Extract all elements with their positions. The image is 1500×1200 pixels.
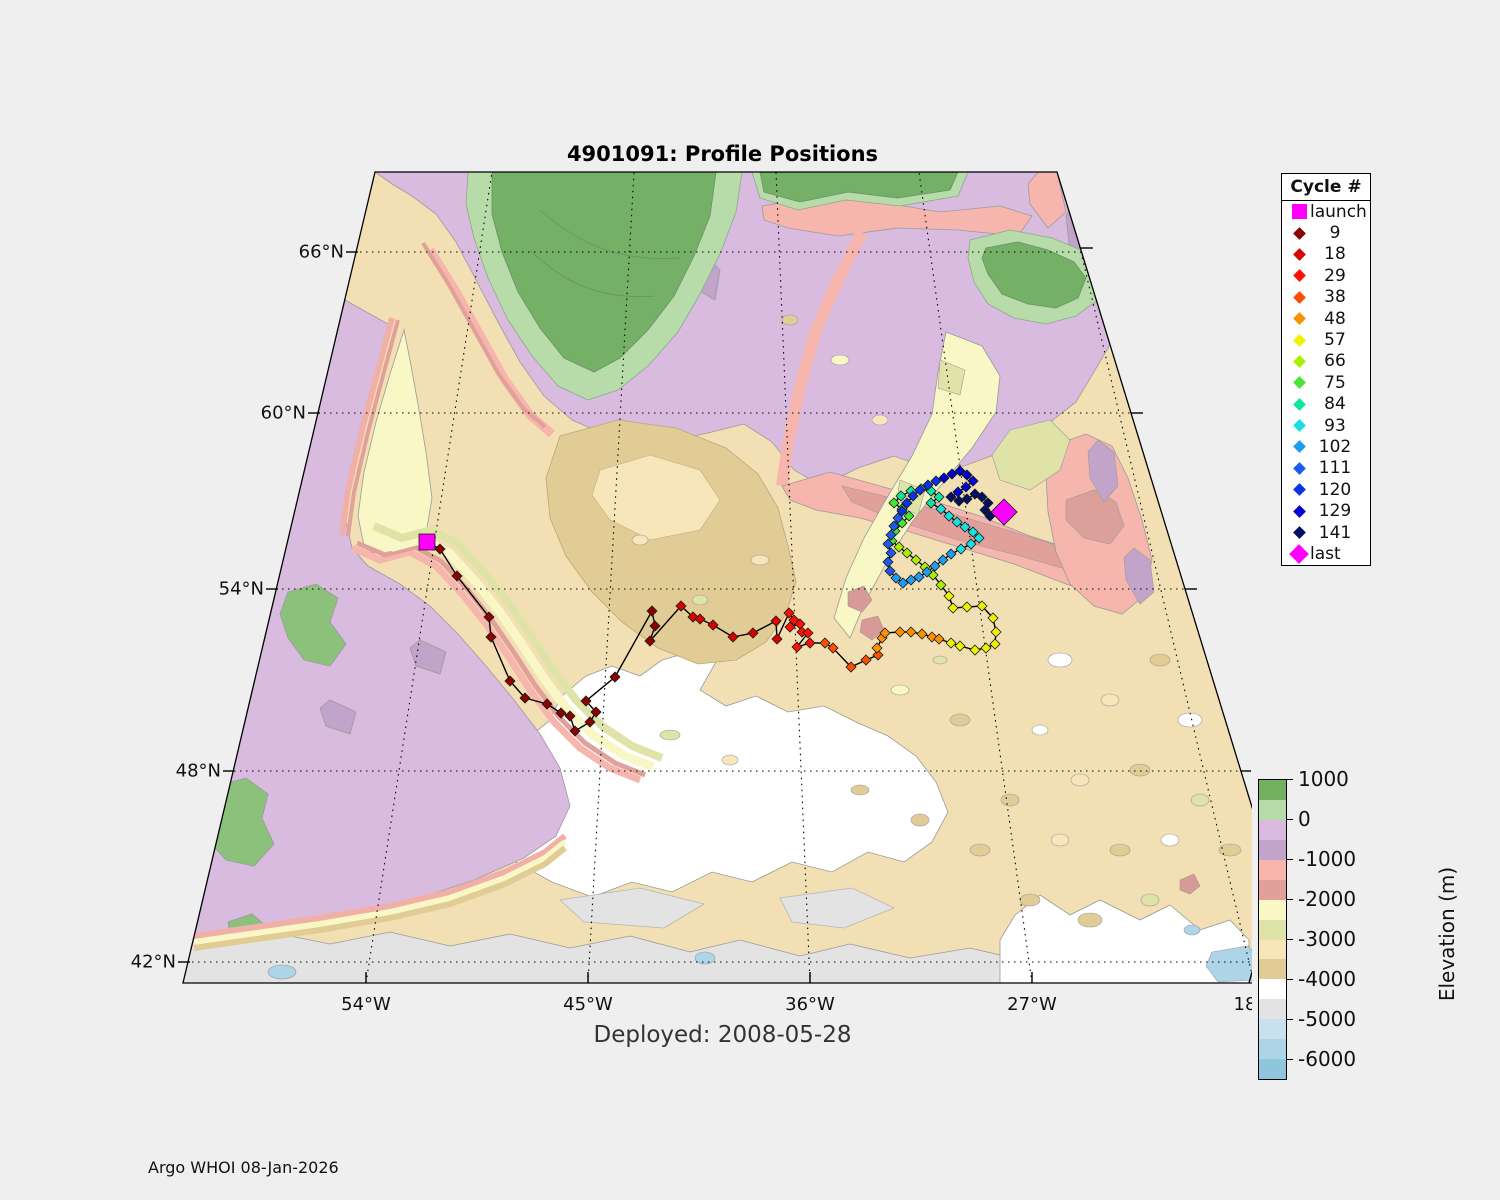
colorbar-segment (1259, 1019, 1286, 1039)
elevation-colorbar: 10000-1000-2000-3000-4000-5000-6000 Elev… (1252, 762, 1500, 1092)
lon-tick-label: 54°W (341, 994, 391, 1015)
legend-entry-label: 102 (1310, 437, 1370, 457)
diamond-marker-icon (1288, 357, 1310, 366)
diamond-marker-icon (1288, 442, 1310, 451)
page-title: 4901091: Profile Positions (0, 142, 1445, 166)
legend-entry-label: last (1310, 544, 1370, 564)
legend-entry-label: 141 (1310, 523, 1370, 543)
colorbar-tick (1286, 819, 1293, 820)
legend-entry-label: 111 (1310, 458, 1370, 478)
colorbar-segment (1259, 1039, 1286, 1059)
legend-entry-29: 29 (1282, 265, 1370, 286)
legend-entry-9: 9 (1282, 222, 1370, 243)
colorbar-tick-label: -6000 (1298, 1047, 1356, 1071)
legend-rows: launch9182938485766758493102111120129141… (1282, 201, 1370, 565)
legend-entry-label: 57 (1310, 330, 1370, 350)
launch-marker (419, 534, 435, 550)
colorbar-tick (1286, 899, 1293, 900)
colorbar-tick (1286, 1019, 1293, 1020)
colorbar-tick-label: -3000 (1298, 927, 1356, 951)
legend-entry-129: 129 (1282, 500, 1370, 521)
legend-entry-label: 18 (1310, 244, 1370, 264)
legend-entry-label: 93 (1310, 416, 1370, 436)
legend-entry-label: 75 (1310, 373, 1370, 393)
diamond-marker-icon (1288, 528, 1310, 537)
legend-entry-18: 18 (1282, 244, 1370, 265)
diamond-marker-icon (1288, 485, 1310, 494)
legend-entry-120: 120 (1282, 479, 1370, 500)
diamond-marker-icon (1288, 464, 1310, 473)
legend-entry-102: 102 (1282, 436, 1370, 457)
legend-entry-141: 141 (1282, 522, 1370, 543)
diamond-marker-icon (1288, 336, 1310, 345)
colorbar-segment (1259, 880, 1286, 900)
lon-tick-label: 45°W (563, 994, 613, 1015)
legend-entry-label: launch (1310, 202, 1370, 222)
colorbar-segment (1259, 999, 1286, 1019)
colorbar-segment (1259, 900, 1286, 920)
colorbar-tick (1286, 939, 1293, 940)
legend-entry-last: last (1282, 543, 1370, 564)
colorbar-tick (1286, 779, 1293, 780)
legend-entry-93: 93 (1282, 415, 1370, 436)
lat-tick-label: 42°N (131, 952, 176, 973)
lat-tick-label: 66°N (299, 242, 344, 263)
colorbar-segment (1259, 780, 1286, 800)
legend-entry-111: 111 (1282, 458, 1370, 479)
colorbar-segment (1259, 959, 1286, 979)
deployed-date-label: Deployed: 2008-05-28 (0, 1022, 1445, 1048)
colorbar-tick-label: -4000 (1298, 967, 1356, 991)
lat-tick-label: 54°N (219, 579, 264, 600)
diamond-marker-icon (1288, 229, 1310, 238)
diamond-marker-icon (1288, 421, 1310, 430)
colorbar-tick (1286, 979, 1293, 980)
colorbar-segment (1259, 920, 1286, 940)
legend-entry-label: 29 (1310, 266, 1370, 286)
colorbar-segment (1259, 940, 1286, 960)
bathymetry-layers (150, 172, 1306, 983)
diamond-marker-icon (1288, 378, 1310, 387)
cycle-legend: Cycle # launch91829384857667584931021111… (1281, 173, 1371, 566)
legend-entry-label: 84 (1310, 394, 1370, 414)
colorbar-gradient (1258, 779, 1287, 1080)
figure: 4901091: Profile Positions Deployed: 200… (0, 0, 1500, 1200)
legend-entry-57: 57 (1282, 329, 1370, 350)
diamond-marker-icon (1288, 271, 1310, 280)
diamond-marker-icon (1288, 507, 1310, 516)
diamond-marker-icon (1288, 293, 1310, 302)
legend-entry-label: 38 (1310, 287, 1370, 307)
lat-tick-label: 48°N (176, 761, 221, 782)
legend-entry-label: 9 (1310, 223, 1370, 243)
legend-entry-84: 84 (1282, 394, 1370, 415)
colorbar-tick-label: 0 (1298, 807, 1311, 831)
legend-entry-label: 129 (1310, 501, 1370, 521)
legend-entry-66: 66 (1282, 351, 1370, 372)
legend-entry-75: 75 (1282, 372, 1370, 393)
diamond-marker-icon (1288, 250, 1310, 259)
colorbar-segment (1259, 1059, 1286, 1079)
colorbar-axis-label: Elevation (m) (1435, 867, 1459, 1001)
bigdiamond-marker-icon (1288, 547, 1310, 561)
colorbar-segment (1259, 800, 1286, 820)
colorbar-segment (1259, 860, 1286, 880)
lat-tick-label: 60°N (261, 403, 306, 424)
legend-title: Cycle # (1282, 174, 1370, 201)
credit-label: Argo WHOI 08-Jan-2026 (148, 1158, 339, 1177)
colorbar-segment (1259, 840, 1286, 860)
colorbar-tick-label: -2000 (1298, 887, 1356, 911)
colorbar-segment (1259, 979, 1286, 999)
lon-tick-label: 36°W (785, 994, 835, 1015)
diamond-marker-icon (1288, 314, 1310, 323)
legend-entry-launch: launch (1282, 201, 1370, 222)
colorbar-segment (1259, 820, 1286, 840)
legend-entry-label: 66 (1310, 351, 1370, 371)
square-marker-icon (1288, 204, 1310, 219)
legend-entry-label: 48 (1310, 309, 1370, 329)
colorbar-tick-label: -5000 (1298, 1007, 1356, 1031)
legend-entry-48: 48 (1282, 308, 1370, 329)
lon-tick-label: 27°W (1007, 994, 1057, 1015)
diamond-marker-icon (1288, 400, 1310, 409)
colorbar-tick (1286, 1059, 1293, 1060)
legend-entry-38: 38 (1282, 287, 1370, 308)
colorbar-tick-label: 1000 (1298, 767, 1349, 791)
colorbar-tick-label: -1000 (1298, 847, 1356, 871)
colorbar-tick (1286, 859, 1293, 860)
legend-entry-label: 120 (1310, 480, 1370, 500)
